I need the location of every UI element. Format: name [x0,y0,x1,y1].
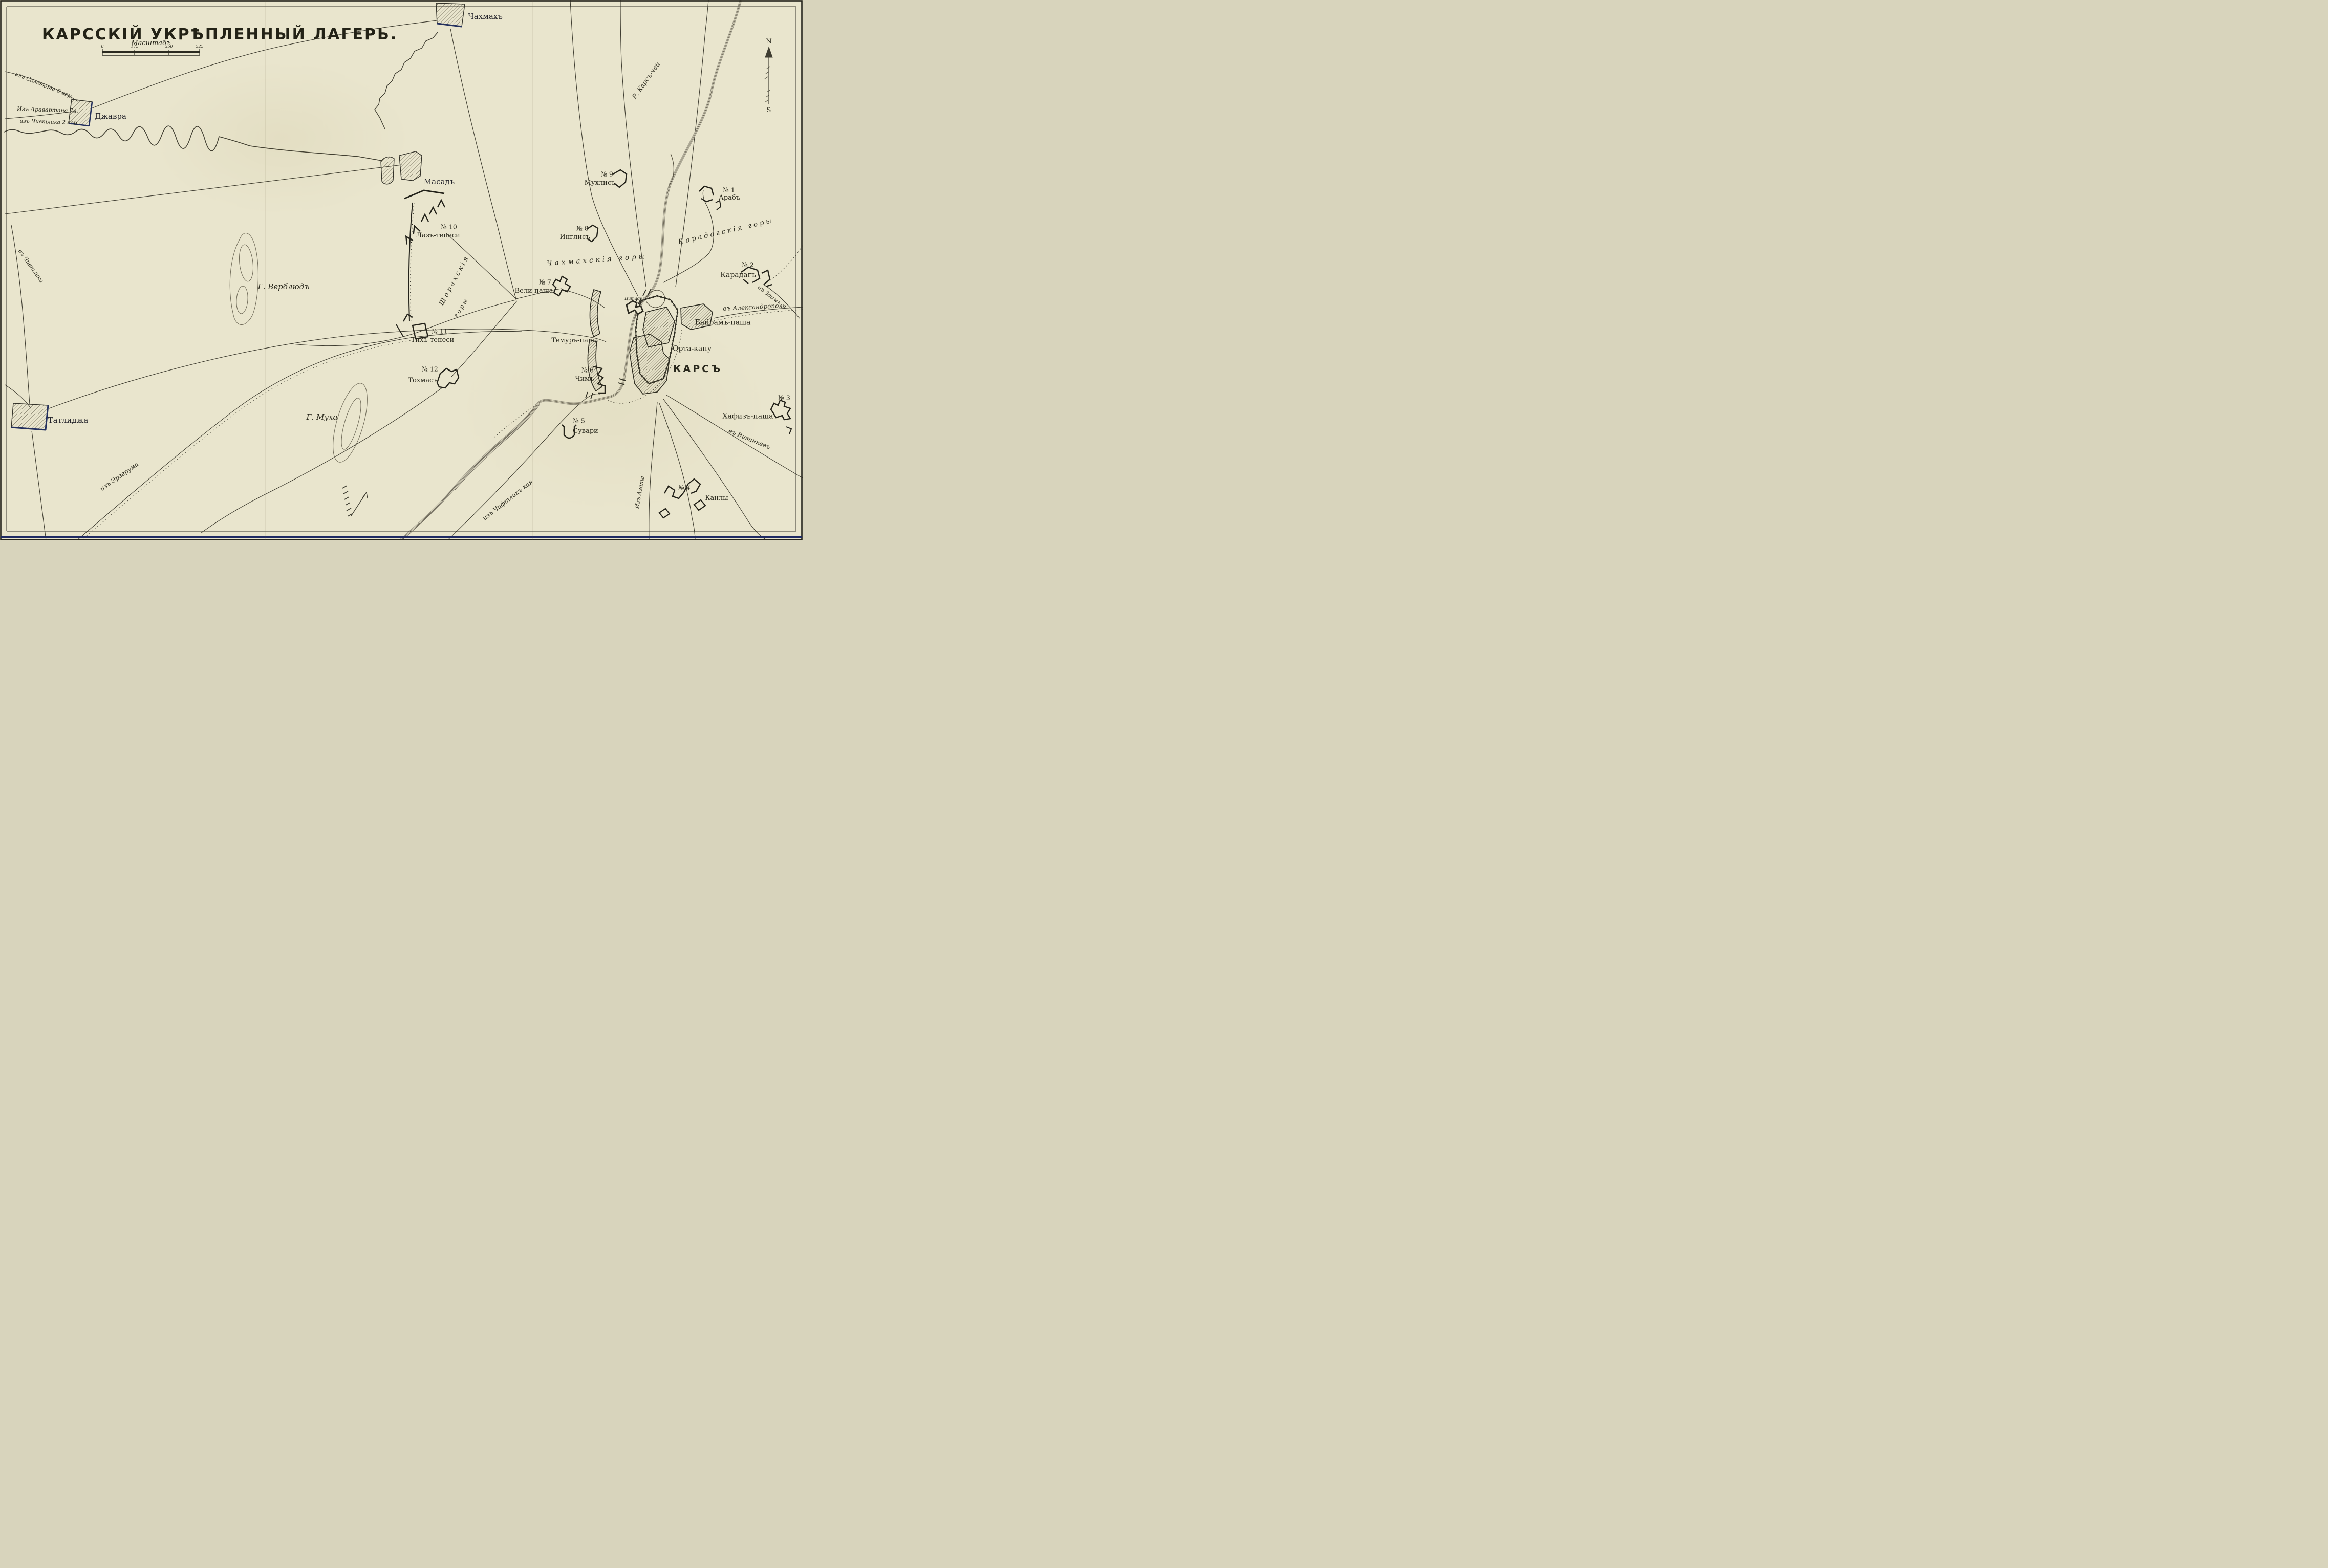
fort-4-name: Канлы [705,495,728,502]
city-label-orta-kapu: Орта-капу [673,345,712,353]
fort-1-arab-shape [699,186,714,202]
fort-8-number: № 8 [576,225,589,231]
scale-bar [102,49,200,56]
fort-11-number: № 11 [432,328,448,334]
compass-rose [765,47,772,104]
scale-tick-3: 525 [196,45,203,49]
compass-south: S [767,107,771,114]
fort-8-name: Инглисъ [559,234,590,241]
fort-3-name: Хафизъ-паша [723,413,773,421]
kars-city-shapes [588,290,713,394]
fort-11-tikh-tepesi-shape [396,314,428,339]
fold-line [532,0,533,540]
scale-tick-1: 175 [131,45,138,49]
city-label-temur: Темуръ-паша [551,337,598,344]
road-network [4,0,803,540]
map-artwork [0,0,803,540]
fort-5-number: № 5 [573,417,585,424]
fort-3-hafiz-shape [771,400,790,420]
hill-mukha-label: Г. Муха [307,413,338,422]
fort-7-veli-shape [553,276,570,296]
city-label-bairam: Байрамъ-паша [695,319,751,327]
fort-3-number: № 3 [778,394,790,401]
fort-2-name: Карадагъ [720,272,756,279]
city-label-kars: КАРСЪ [673,364,722,375]
fort-7-number: № 7 [539,278,551,285]
flow-arrow [342,486,368,516]
historic-map-kars: КАРССКІЙ УКРѢПЛЕННЫЙ ЛАГЕРЬ. Масштабъ 0 … [0,0,803,540]
river-kars-chai [400,0,741,540]
settlement-label-chakhmakh: Чахмахъ [468,13,503,21]
fort-9-number: № 9 [601,170,613,177]
map-frame [1,1,802,540]
fort-7-name: Вели-паша [515,288,553,295]
fort-12-number: № 12 [422,365,438,372]
map-title: КАРССКІЙ УКРѢПЛЕННЫЙ ЛАГЕРЬ. [42,27,398,43]
fort-4-number: № 4 [678,484,691,491]
settlement-shapes [11,3,465,430]
scale-tick-0: 0 [101,45,103,49]
fort-5-name: Сувари [573,428,598,435]
fort-2-number: № 2 [742,261,754,268]
scale-tick-2: 350 [165,45,173,49]
hill-contours [230,233,374,466]
fort-6-name: Чимъ [575,376,594,383]
city-label-citadel: Цитадель [624,297,647,301]
fold-line [265,0,266,540]
settlement-label-dzhavra: Джавра [95,113,126,121]
fort-10-name: Лазъ-тепеси [416,232,460,239]
hill-verblud-label: Г. Верблюдъ [258,283,309,291]
settlement-label-masad: Масадъ [424,178,455,186]
compass-north: N [766,38,771,46]
fort-12-tokhmas-shape [437,368,459,388]
settlement-label-tatlidzha: Татлиджа [48,417,89,425]
fort-1-number: № 1 [723,186,735,193]
fort-6-number: № 6 [581,366,594,373]
fort-10-number: № 10 [441,223,457,230]
fort-1-name: Арабъ [719,194,740,202]
fort-9-name: Мухлисъ [585,180,616,187]
fort-12-name: Тохмасъ [408,377,437,384]
fort-11-name: Тихъ-тепеси [411,337,455,344]
